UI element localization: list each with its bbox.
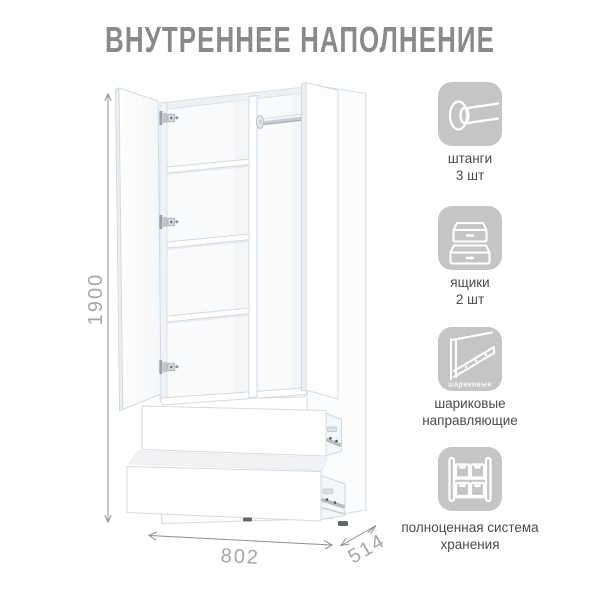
cabinet-foot <box>338 521 348 526</box>
feature-label-line: штанги <box>350 151 590 168</box>
feature-label-line: 3 шт <box>350 168 590 185</box>
feature-label-rods: штанги 3 шт <box>350 151 590 184</box>
drawer-2 <box>127 467 345 522</box>
feature-label-storage: полноценная система хранения <box>350 520 590 553</box>
feature-tile-storage <box>438 447 502 511</box>
feature-label-line: направляющие <box>350 413 590 430</box>
feature-label-drawers: ящики 2 шт <box>350 275 590 308</box>
feature-label-line: шариковые <box>350 396 590 413</box>
feature-tile-slides: шариковые <box>438 327 502 391</box>
feature-label-line: хранения <box>350 537 590 554</box>
drawer-front <box>142 406 326 456</box>
height-dimension-value: 1900 <box>85 273 107 326</box>
feature-tile-rods <box>438 82 502 146</box>
cabinet-foot <box>243 518 252 522</box>
feature-tile-drawers <box>438 206 502 270</box>
width-dimension-value: 802 <box>220 545 260 569</box>
feature-label-slides: шариковые направляющие <box>350 396 590 429</box>
left-door <box>116 88 162 411</box>
slide-icon-caption: шариковые <box>448 382 492 389</box>
drawer-front <box>127 467 321 522</box>
feature-label-line: ящики <box>350 275 590 292</box>
feature-label-line: полноценная система <box>350 520 590 537</box>
feature-label-line: 2 шт <box>350 292 590 309</box>
drawers-icon <box>438 206 502 270</box>
center-partition <box>249 96 257 398</box>
rod-icon <box>438 82 502 146</box>
storage-icon <box>438 447 502 511</box>
product-infographic: ВНУТРЕННЕЕ НАПОЛНЕНИЕ <box>0 0 600 600</box>
drawer-1 <box>142 406 342 456</box>
right-door <box>302 83 339 400</box>
slide-icon: шариковые <box>438 327 502 391</box>
